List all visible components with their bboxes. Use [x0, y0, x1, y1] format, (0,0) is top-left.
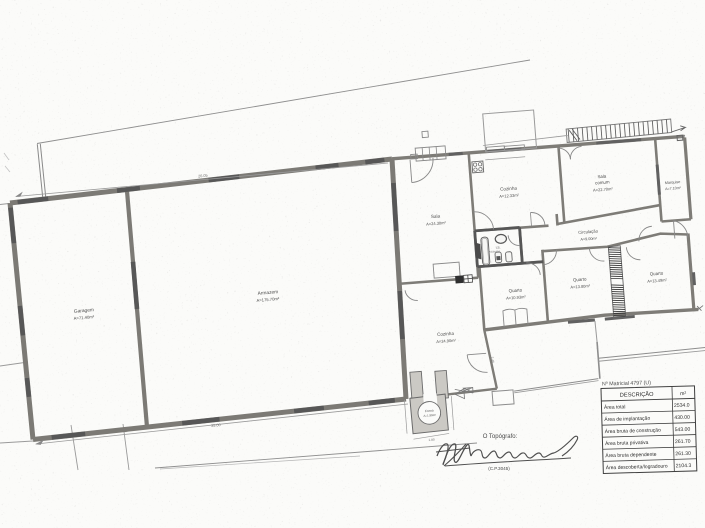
svg-text:Quarto: Quarto — [573, 276, 587, 282]
svg-text:261.70: 261.70 — [675, 439, 691, 445]
svg-text:Área total: Área total — [604, 403, 626, 411]
svg-text:543.00: 543.00 — [675, 427, 691, 433]
svg-text:1.80: 1.80 — [428, 438, 435, 442]
svg-text:O Topógrafo:: O Topógrafo: — [483, 434, 518, 440]
svg-text:2534.0: 2534.0 — [674, 403, 690, 409]
svg-text:Quarto: Quarto — [650, 270, 664, 276]
svg-text:Área bruta privativa: Área bruta privativa — [605, 439, 649, 447]
svg-text:DESCRIÇÃO: DESCRIÇÃO — [620, 391, 655, 399]
svg-text:2104.3: 2104.3 — [676, 463, 692, 469]
svg-text:(C.P.3045): (C.P.3045) — [488, 466, 510, 471]
svg-text:Sala: Sala — [431, 213, 441, 219]
svg-text:Área de implantação: Área de implantação — [604, 415, 650, 423]
svg-text:Sala: Sala — [597, 174, 607, 180]
svg-text:m²: m² — [680, 391, 686, 397]
svg-text:Quarto: Quarto — [508, 287, 522, 293]
svg-text:261.30: 261.30 — [675, 451, 691, 457]
svg-text:430.00: 430.00 — [674, 415, 690, 421]
svg-text:Área bruta dependente: Área bruta dependente — [605, 451, 657, 459]
